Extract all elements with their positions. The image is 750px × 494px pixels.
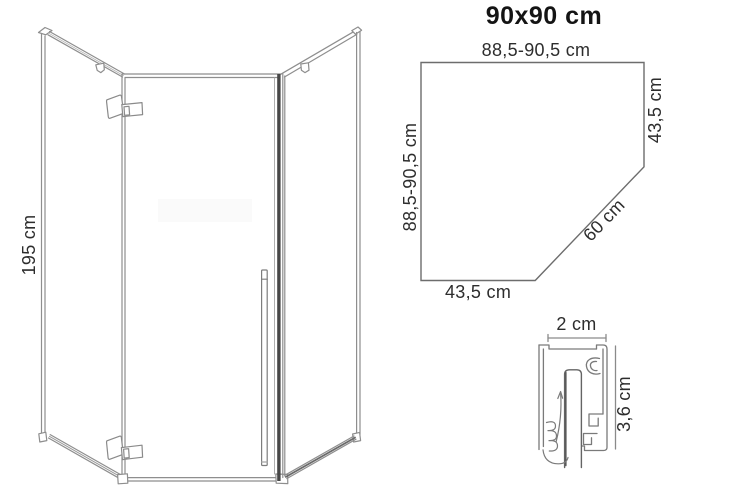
- door-right-stile: [277, 74, 280, 481]
- profile-height-dimension: 3,6 cm: [614, 354, 634, 454]
- bottom-left-cap: [39, 432, 47, 442]
- right-side-panel: [282, 27, 362, 479]
- profile-width-dimension: 2 cm: [536, 314, 617, 334]
- profile-hook-lower: [584, 434, 598, 445]
- profile-hook-upper: [589, 414, 603, 426]
- plan-bottom-dimension: 43,5 cm: [445, 282, 565, 302]
- profile-glass-pane: [565, 370, 582, 468]
- size-title: 90x90 cm: [421, 2, 667, 31]
- plan-view-drawing: [421, 63, 644, 281]
- bottom-corner-block-left: [118, 474, 128, 484]
- plan-pentagon-outline: [421, 63, 644, 281]
- front-height-label: 195 cm: [19, 195, 39, 295]
- glass-sheen: [158, 199, 252, 222]
- front-view-drawing: [39, 27, 362, 484]
- water-deflector-arrow: [556, 393, 561, 442]
- door-handle: [262, 270, 268, 466]
- plan-top-dimension: 88,5-90,5 cm: [421, 40, 651, 60]
- profile-width-dim-line: [548, 335, 606, 342]
- plan-right-dimension: 43,5 cm: [645, 60, 665, 160]
- top-bar-clip: [96, 63, 105, 72]
- top-bar-clip-right: [301, 63, 309, 73]
- left-side-panel: [39, 28, 125, 479]
- plan-left-dimension: 88,5-90,5 cm: [400, 112, 420, 242]
- profile-screw-channel: [586, 358, 600, 374]
- profile-section-drawing: [539, 335, 616, 468]
- technical-drawing-canvas: [0, 0, 750, 494]
